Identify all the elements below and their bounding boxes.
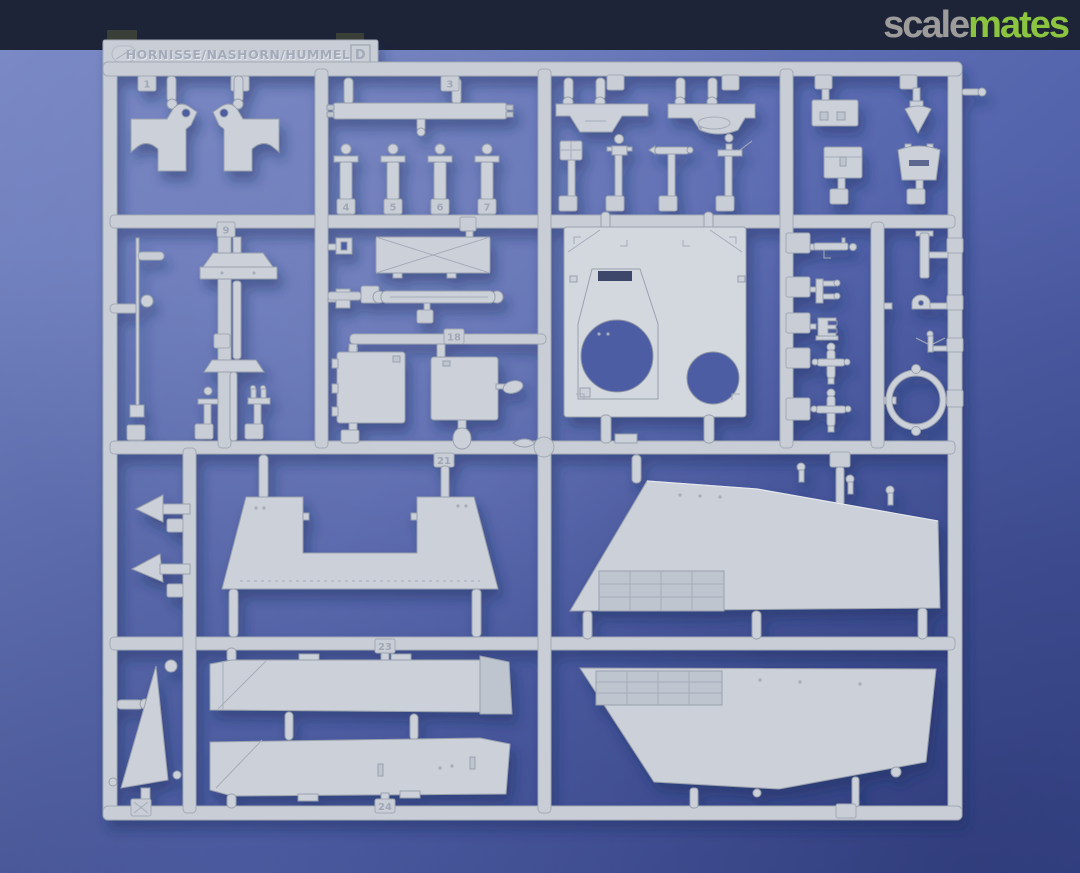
svg-text:5: 5 [390,203,397,214]
part-pick-head [900,75,931,133]
part-long-bar: 3 [327,76,513,136]
louvre-grille-lower [596,671,722,705]
part-pronged-bracket [786,277,840,303]
part-periscope-7: 7 [475,144,499,214]
part-clamp-e [786,313,838,340]
part-hatch-right: 18 [431,329,524,449]
part-mount-bracket-b [668,75,755,134]
part-periscope-5: 5 [381,144,405,214]
sprue-title: HORNISSE/NASHORN/HUMMEL [126,47,351,62]
part-valve-cross-b [786,389,851,432]
part-fitting-d [716,134,752,211]
part-valve-cross-a [786,343,850,384]
outer-pin [962,89,980,95]
part-arrow-b [132,554,190,597]
svg-text:21: 21 [437,456,451,467]
sprue-letter: D [355,48,366,63]
svg-text:9: 9 [223,226,230,237]
part-half-round [884,295,963,310]
part-toolbox [824,147,862,204]
sight-hole [687,352,739,404]
part-periscope-6: 6 [428,144,452,214]
svg-text:3: 3 [447,80,454,91]
part-fender-lower: 24 [210,738,510,813]
part-side-panel-upper [570,452,940,639]
part-antenna [110,238,164,440]
part-lever-a [195,387,218,439]
svg-text:24: 24 [378,802,392,813]
part-mg-small [786,233,857,258]
part-slat-bar [328,286,503,323]
svg-text:18: 18 [447,333,461,344]
part-mount-bracket-a [556,75,648,132]
part-rod-small [649,146,693,211]
svg-text:4: 4 [343,203,350,214]
part-clamp-a [328,238,352,254]
svg-text:6: 6 [437,203,444,214]
part-front-plate [564,212,746,443]
part-cone [109,660,181,816]
part-lever-b [245,386,270,440]
photo-stage: scalemates HORNISSE/NASHORN/HUMMEL HORNI… [0,0,1080,873]
sprue-photo-svg: HORNISSE/NASHORN/HUMMEL HORNISSE/NASHORN… [0,0,1080,873]
svg-text:7: 7 [484,203,491,214]
sprue-group: HORNISSE/NASHORN/HUMMEL HORNISSE/NASHORN… [103,40,986,820]
gun-aperture-hole [581,320,653,392]
part-trail-arm-left: 1 [131,76,197,171]
part-rear-wall: 21 [222,439,535,637]
part-periscope-4: 4 [334,144,358,214]
part-fitting-b [606,135,632,212]
runner-joint [534,437,554,457]
part-arrow-a [136,495,190,532]
svg-text:1: 1 [144,80,151,91]
part-shield-small [898,144,940,204]
part-fender-upper: 23 [210,639,512,740]
part-bracket-trapezoid-upper: 9 [200,222,277,359]
part-rivet-plate [812,75,858,126]
part-hatch-small [559,141,582,211]
part-trail-arm-right: 2 [213,76,279,171]
part-side-panel-lower [580,668,936,818]
part-hatch-left [332,344,405,443]
svg-text:23: 23 [378,642,392,653]
